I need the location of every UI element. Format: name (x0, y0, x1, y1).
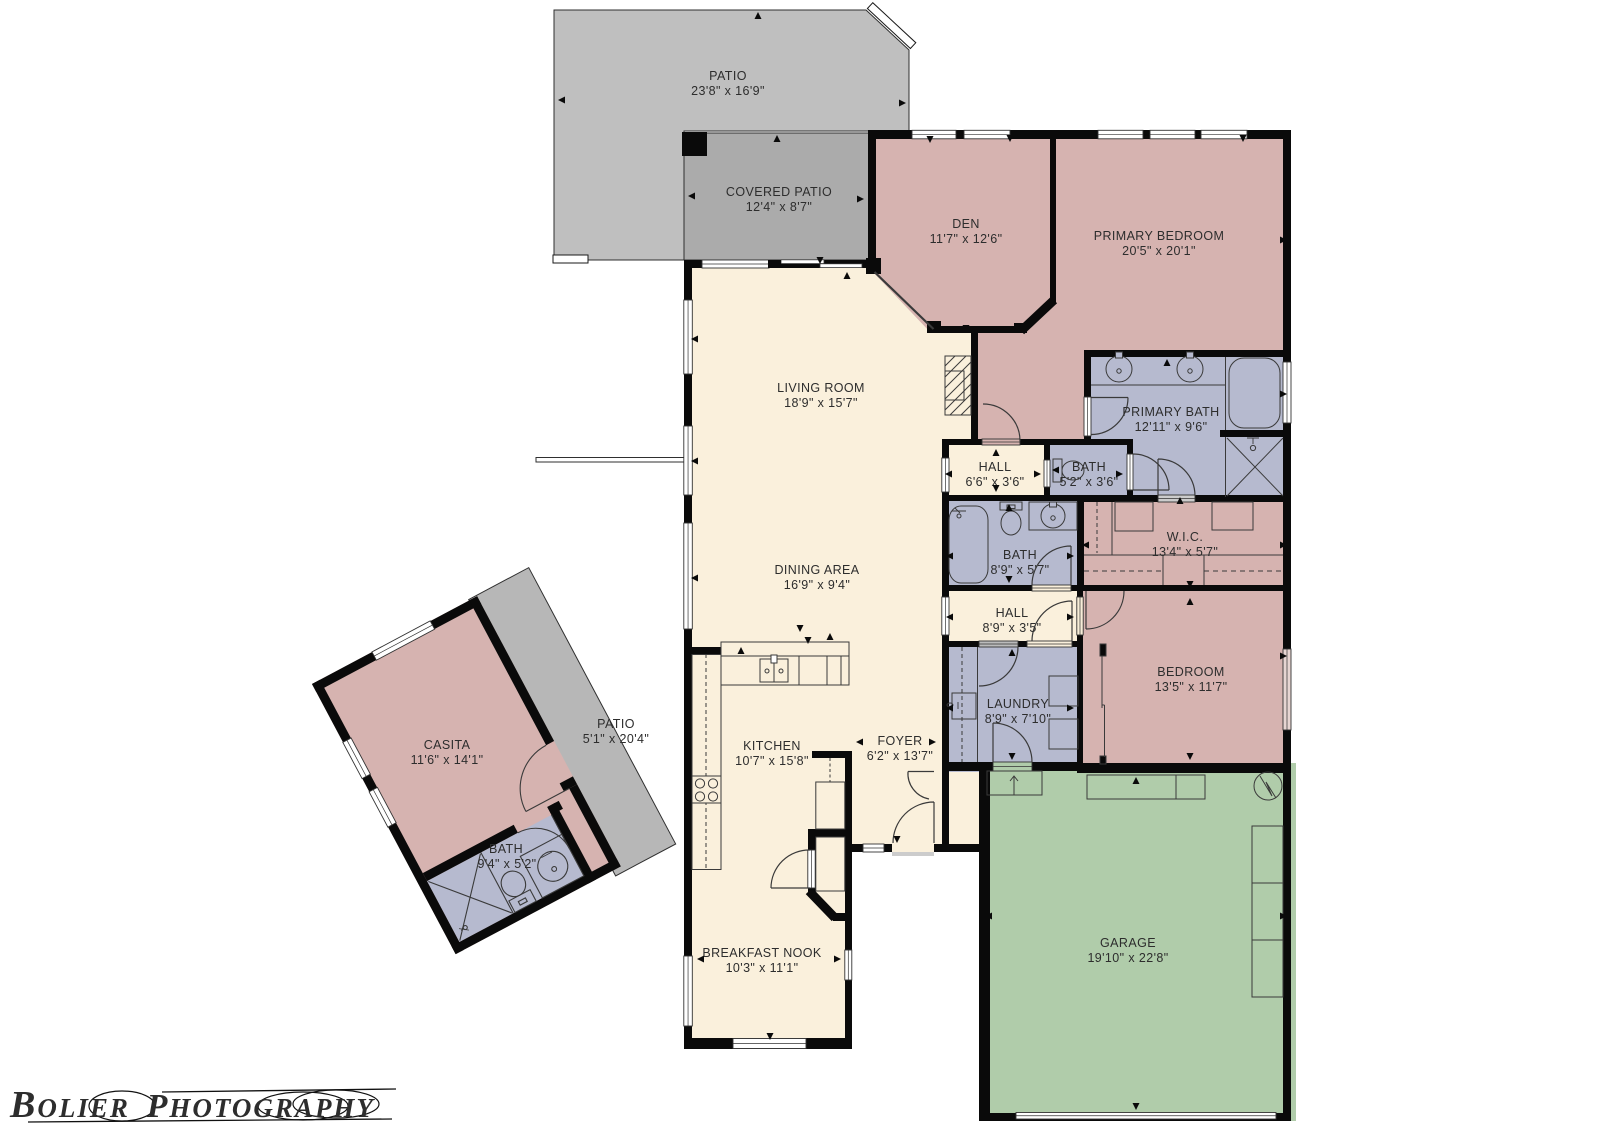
svg-text:KITCHEN: KITCHEN (743, 739, 801, 753)
svg-text:8'9" x 7'10": 8'9" x 7'10" (985, 712, 1051, 726)
svg-text:BATH: BATH (489, 842, 523, 856)
svg-text:18'9" x 15'7": 18'9" x 15'7" (784, 396, 858, 410)
svg-text:13'4" x 5'7": 13'4" x 5'7" (1152, 545, 1218, 559)
svg-text:BATH: BATH (1072, 460, 1106, 474)
svg-text:GARAGE: GARAGE (1100, 936, 1156, 950)
svg-text:HALL: HALL (996, 606, 1029, 620)
svg-text:HALL: HALL (979, 460, 1012, 474)
svg-text:20'5" x 20'1": 20'5" x 20'1" (1122, 244, 1196, 258)
svg-text:W.I.C.: W.I.C. (1167, 530, 1203, 544)
svg-text:BEDROOM: BEDROOM (1157, 665, 1224, 679)
svg-text:PRIMARY BEDROOM: PRIMARY BEDROOM (1094, 229, 1225, 243)
svg-text:16'9" x 9'4": 16'9" x 9'4" (784, 578, 850, 592)
svg-text:PATIO: PATIO (597, 717, 635, 731)
svg-text:9'4" x 5'2": 9'4" x 5'2" (477, 857, 536, 871)
svg-text:LIVING ROOM: LIVING ROOM (777, 381, 865, 395)
svg-text:6'2" x 13'7": 6'2" x 13'7" (867, 749, 933, 763)
svg-text:8'9" x 3'5": 8'9" x 3'5" (982, 621, 1041, 635)
svg-text:10'3" x 11'1": 10'3" x 11'1" (726, 961, 799, 975)
svg-text:5'2" x 3'6": 5'2" x 3'6" (1059, 475, 1118, 489)
svg-text:23'8" x 16'9": 23'8" x 16'9" (691, 84, 765, 98)
svg-text:5'1" x 20'4": 5'1" x 20'4" (583, 732, 649, 746)
svg-text:LAUNDRY: LAUNDRY (987, 697, 1050, 711)
svg-text:COVERED PATIO: COVERED PATIO (726, 185, 832, 199)
svg-text:DEN: DEN (952, 217, 980, 231)
svg-text:19'10" x 22'8": 19'10" x 22'8" (1087, 951, 1168, 965)
svg-text:11'6" x 14'1": 11'6" x 14'1" (411, 753, 484, 767)
svg-text:PRIMARY BATH: PRIMARY BATH (1122, 405, 1219, 419)
svg-text:PATIO: PATIO (709, 69, 747, 83)
svg-text:13'5" x 11'7": 13'5" x 11'7" (1155, 680, 1228, 694)
svg-text:BREAKFAST NOOK: BREAKFAST NOOK (702, 946, 822, 960)
svg-text:BATH: BATH (1003, 548, 1037, 562)
svg-text:11'7" x 12'6": 11'7" x 12'6" (930, 232, 1003, 246)
svg-text:12'4" x 8'7": 12'4" x 8'7" (746, 200, 812, 214)
svg-text:8'9" x 5'7": 8'9" x 5'7" (990, 563, 1049, 577)
svg-text:10'7" x 15'8": 10'7" x 15'8" (735, 754, 809, 768)
svg-text:CASITA: CASITA (424, 738, 471, 752)
svg-text:FOYER: FOYER (877, 734, 922, 748)
svg-text:12'11" x 9'6": 12'11" x 9'6" (1135, 420, 1208, 434)
svg-text:DINING AREA: DINING AREA (775, 563, 860, 577)
